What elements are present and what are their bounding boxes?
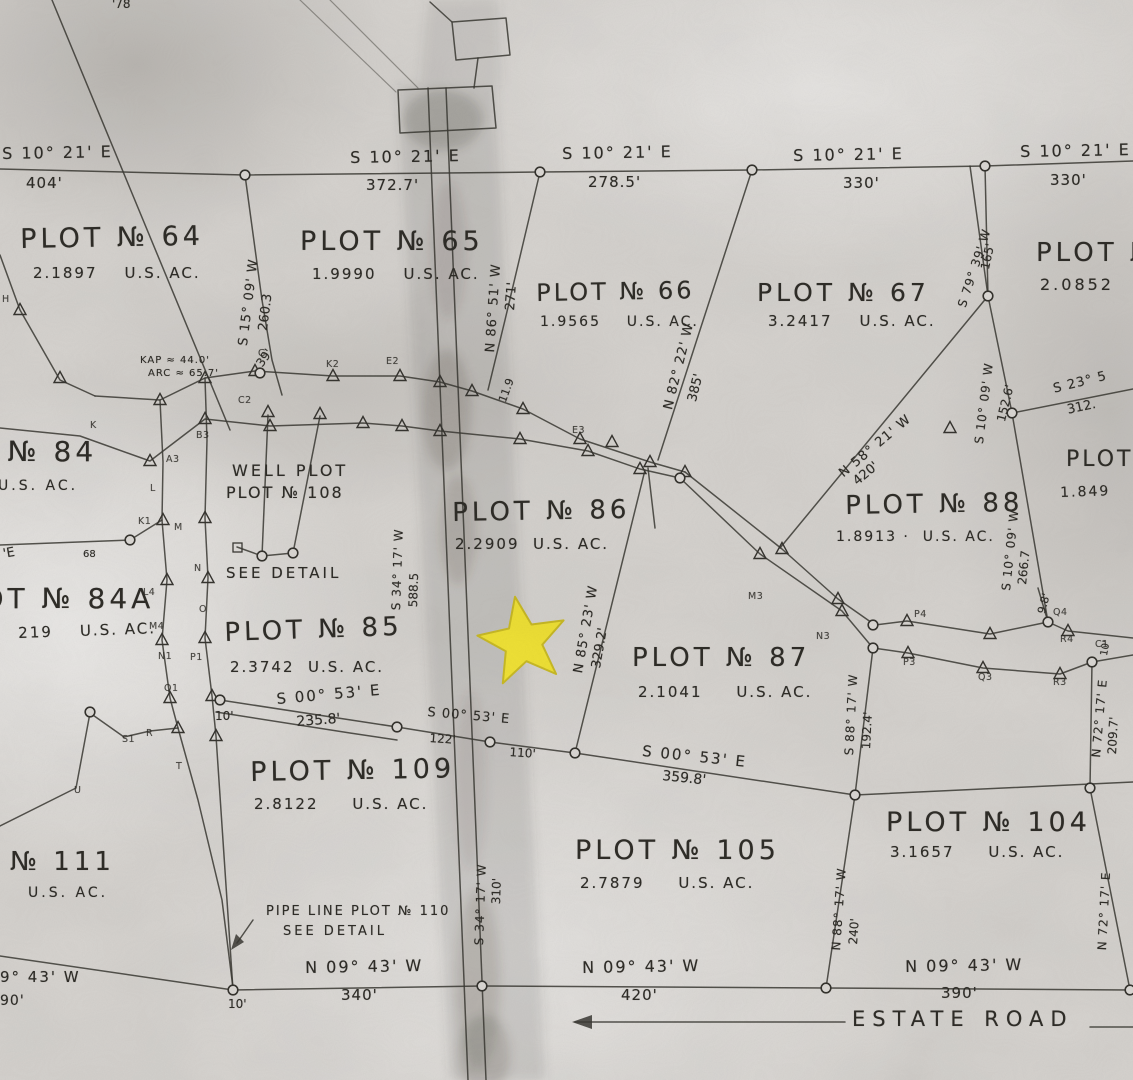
marker-letter-k2: K2 [326, 360, 339, 370]
monument-marker [747, 165, 757, 175]
marker-letter-b3: B3 [196, 431, 210, 441]
marker-letter-p1: P1 [190, 653, 203, 663]
marker-letter-m3: M3 [748, 592, 763, 602]
plot-87-name: PLOT № 87 [632, 645, 810, 671]
monument-marker [850, 790, 860, 800]
fragment-e: 'E [2, 546, 16, 561]
marker-letter-r3: R3 [1053, 678, 1067, 688]
monument-marker [868, 643, 878, 653]
fragment-68: 68 [83, 550, 96, 560]
monument-marker [257, 551, 267, 561]
monument-marker [255, 368, 265, 378]
plot-66-name: PLOT № 66 [536, 278, 695, 305]
arc-note: ARC ≈ 65.7' [148, 369, 219, 379]
dist-top-5: 330' [1050, 173, 1087, 188]
plot-105-area: 2.7879 U.S. AC. [580, 876, 754, 891]
plot-67-area: 3.2417 U.S. AC. [768, 314, 936, 329]
marker-letter-o: O [199, 605, 207, 615]
marker-letter-p4: P4 [914, 610, 927, 620]
dist-bottom-2: 420' [621, 988, 658, 1003]
tick-10ft-mid: 10' [215, 710, 234, 722]
plot-109-name: PLOT № 109 [250, 755, 455, 786]
plot-topright-name: PLOT № [1036, 240, 1133, 266]
monument-marker [983, 291, 993, 301]
marker-letter-e3: E3 [572, 426, 585, 436]
plot-88-area: 1.8913 · U.S. AC. [836, 530, 995, 544]
marker-letter-g: G [258, 349, 266, 359]
monument-marker [485, 737, 495, 747]
dist-top-2: 372.7' [366, 178, 419, 193]
monument-marker [868, 620, 878, 630]
marker-letter-r4: R4 [1060, 635, 1074, 645]
plot-64-name: PLOT № 64 [20, 223, 204, 253]
plot-104-area: 3.1657 U.S. AC. [890, 845, 1064, 860]
marker-letter-u: U [74, 786, 81, 796]
plot-right-area: 1.849 [1060, 484, 1111, 500]
monument-marker [980, 161, 990, 171]
monument-marker [821, 983, 831, 993]
plot-65-area: 1.9990 U.S. AC. [312, 267, 480, 282]
triangle-station-marker [394, 370, 406, 381]
monument-marker [675, 473, 685, 483]
dist-359-8: 359.8' [662, 769, 707, 788]
dist-top-4: 330' [843, 176, 880, 191]
marker-letter-h: H [2, 295, 10, 305]
plot-right-name: PLOT № [1066, 449, 1133, 471]
plot-87-area: 2.1041 U.S. AC. [638, 685, 812, 700]
plot-85-name: PLOT № 85 [224, 614, 403, 646]
dist-bottom-1: 340' [341, 988, 378, 1003]
plot-111-area: U.S. AC. [28, 886, 108, 900]
monument-marker [1085, 783, 1095, 793]
plot-64-area: 2.1897 U.S. AC. [33, 266, 201, 281]
marker-letter-a3: A3 [166, 455, 180, 465]
plot-109-area: 2.8122 U.S. AC. [254, 797, 428, 812]
dist-65-66: 271' [504, 282, 519, 311]
plot-88-name: PLOT № 88 [845, 490, 1024, 519]
plot-67-name: PLOT № 67 [757, 280, 930, 305]
plot-86-name: PLOT № 86 [452, 497, 631, 526]
triangle-station-marker [357, 417, 369, 428]
dist-192-4: 192.4' [860, 711, 874, 749]
marker-letter-l4: L4 [143, 588, 155, 598]
survey-map: S 10° 21' E404'S 10° 21' E372.7'S 10° 21… [0, 0, 1133, 1080]
marker-letter-e2: E2 [386, 357, 399, 367]
bearing-top-5: S 10° 21' E [1020, 142, 1131, 160]
bearing-top-2: S 10° 21' E [350, 148, 461, 166]
bearing-bottom-1: N 09° 43' W [305, 958, 423, 976]
marker-letter-k1: K1 [138, 517, 151, 527]
dist-top-3: 278.5' [588, 175, 641, 190]
dist-122ft: 122' [429, 732, 456, 746]
bearing-s34-lower: S 34° 17' W [473, 863, 488, 945]
marker-letter-s1: S1 [122, 735, 135, 745]
plot-topright-area: 2.0852 [1040, 277, 1114, 293]
dist-266-7: 266.7 [1016, 550, 1032, 585]
marker-letter-q1: Q1 [164, 684, 179, 694]
estate-road-label: ESTATE ROAD [852, 1009, 1074, 1030]
triangle-station-marker [901, 615, 913, 626]
bearing-top-3: S 10° 21' E [562, 144, 673, 162]
monument-marker [1043, 617, 1053, 627]
marker-letter-q3: Q3 [978, 673, 993, 683]
marker-letter-p3: P3 [903, 658, 916, 668]
tick-10ft-bottom: 10' [228, 998, 247, 1010]
plot-84a-name: PLOT № 84A [0, 585, 154, 613]
see-detail-note-2: SEE DETAIL [283, 925, 387, 938]
monument-marker [85, 707, 95, 717]
monument-marker [125, 535, 135, 545]
bearing-top-1: S 10° 21' E [2, 144, 113, 162]
marker-letter-n3: N3 [816, 632, 830, 642]
marker-letter-q4: Q4 [1053, 608, 1068, 618]
plot-86-area: 2.2909 U.S. AC. [455, 537, 609, 552]
fragment-78: '78 [112, 0, 131, 10]
dist-240ft: 240' [847, 918, 861, 945]
kap-note: KAP ≈ 44.0' [140, 356, 210, 366]
well-plot-label: WELL PLOT [232, 463, 348, 479]
triangle-station-marker [606, 436, 618, 447]
marker-letter-k: K [90, 421, 97, 431]
marker-letter-c1: C1 [1095, 640, 1109, 650]
marker-letter-c2: C2 [238, 396, 252, 406]
bearing-bottom-3: N 09° 43' W [905, 957, 1023, 975]
pipe-line-arrow [231, 920, 253, 950]
marker-letter-m4: M4 [149, 622, 164, 632]
dist-588-5: 588.5 [407, 573, 420, 608]
plot-111-name: № 111 [10, 849, 115, 875]
marker-letter-t: T [176, 762, 182, 772]
bearing-s34-upper: S 34° 17' W [390, 528, 405, 610]
monument-marker [392, 722, 402, 732]
dist-310ft: 310' [490, 878, 503, 905]
dist-top-1: 404' [26, 176, 63, 191]
plot-84-name: PLOT № 84 [0, 438, 97, 466]
bearing-top-4: S 10° 21' E [793, 146, 904, 164]
monument-marker [570, 748, 580, 758]
plot-104-name: PLOT № 104 [886, 809, 1091, 836]
pipe-line-note: PIPE LINE PLOT № 110 [266, 905, 450, 918]
triangle-station-marker [944, 422, 956, 433]
dist-bottom-3: 390' [941, 986, 978, 1001]
triangle-station-marker [836, 605, 848, 616]
dist-235-8: 235.8' [296, 712, 341, 729]
marker-letter-n1: N1 [158, 652, 172, 662]
monument-marker [1087, 657, 1097, 667]
well-plot-number: PLOT № 108 [226, 485, 344, 501]
dist-209-7: 209.7' [1106, 716, 1120, 754]
plot-65-name: PLOT № 65 [300, 228, 484, 255]
marker-letter-m: M [174, 523, 183, 533]
bearing-bottom-2: N 09° 43' W [582, 958, 700, 976]
marker-letter-r: R [146, 729, 153, 739]
bearing-bottom-left: 9° 43' W [0, 970, 81, 985]
plot-84-area: U.S. AC. [0, 479, 78, 493]
marker-letter-n: N [194, 564, 202, 574]
monument-marker [215, 695, 225, 705]
plot-105-name: PLOT № 105 [575, 837, 780, 864]
monument-marker [535, 167, 545, 177]
monument-marker [288, 548, 298, 558]
see-detail-note-1: SEE DETAIL [226, 566, 341, 581]
monument-marker [240, 170, 250, 180]
monument-marker [477, 981, 487, 991]
monument-marker [1125, 985, 1133, 995]
plot-66-area: 1.9565 U.S. AC. [540, 315, 699, 329]
dist-bottom-left: 90' [0, 994, 25, 1008]
monument-marker [228, 985, 238, 995]
marker-letter-l: L [150, 484, 156, 494]
plot-85-area: 2.3742 U.S. AC. [230, 660, 384, 675]
dist-110ft: 110' [509, 746, 536, 760]
